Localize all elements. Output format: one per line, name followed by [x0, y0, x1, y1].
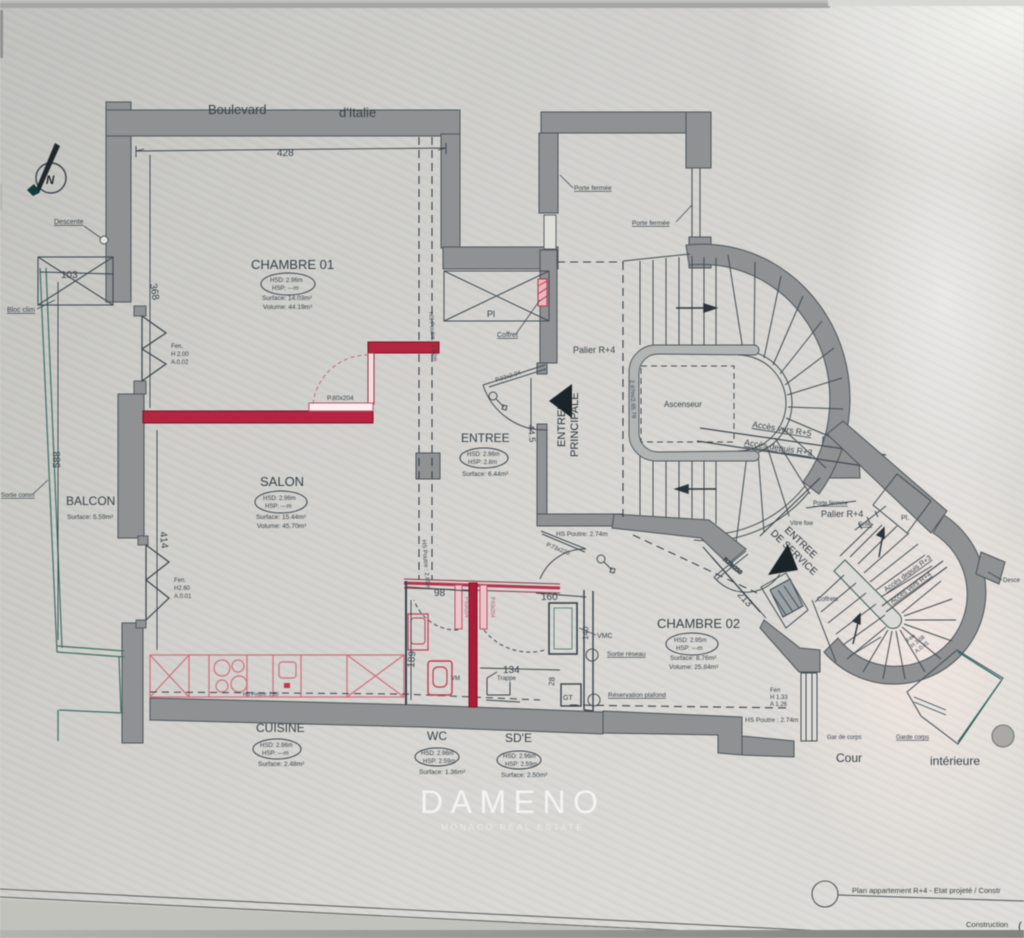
svg-text:BALCON: BALCON: [66, 494, 115, 508]
svg-text:134: 134: [503, 665, 520, 676]
svg-text:HSP: 2.59m: HSP: 2.59m: [505, 762, 537, 768]
svg-text:N: N: [46, 175, 55, 187]
svg-text:HS Poutre : 2.74m: HS Poutre : 2.74m: [745, 717, 798, 724]
svg-text:189: 189: [406, 650, 418, 668]
svg-text:Cour: Cour: [836, 751, 862, 765]
svg-text:Construction: Construction: [966, 920, 1008, 929]
svg-text:HSD: 2.96m: HSD: 2.96m: [270, 278, 303, 284]
svg-text:CHAMBRE 01: CHAMBRE 01: [251, 257, 334, 272]
svg-text:VMC: VMC: [597, 633, 613, 640]
svg-text:588: 588: [52, 451, 63, 468]
svg-text:VM: VM: [451, 676, 460, 682]
svg-text:Porte fermée: Porte fermée: [632, 220, 670, 227]
svg-text:Fen.: Fen.: [171, 344, 183, 350]
svg-text:HSD: 2.95m: HSD: 2.95m: [674, 638, 707, 644]
svg-text:H 1.33: H 1.33: [770, 695, 788, 701]
svg-text:HSD: 2.96m: HSD: 2.96m: [421, 751, 454, 757]
svg-text:Plan appartement R+4 - Etat pr: Plan appartement R+4 - Etat projeté / Co…: [852, 886, 1001, 895]
svg-text:GT: GT: [563, 695, 573, 702]
svg-text:HS Poutre: 2.74m: HS Poutre: 2.74m: [556, 531, 608, 538]
svg-text:Porte fermée: Porte fermée: [813, 501, 848, 507]
svg-text:Surface: 14.03m²: Surface: 14.03m²: [262, 295, 313, 302]
svg-text:Gar de corps: Gar de corps: [827, 735, 862, 741]
svg-text:Pl: Pl: [487, 309, 495, 319]
svg-text:Porte fermée: Porte fermée: [574, 185, 612, 192]
svg-text:Descente: Descente: [54, 219, 84, 226]
svg-text:H2.60: H2.60: [174, 586, 191, 592]
svg-text:ENTREE: ENTREE: [461, 431, 510, 445]
svg-text:P.80x204: P.80x204: [327, 395, 354, 402]
svg-text:Trappe: Trappe: [497, 676, 516, 682]
svg-text:Surface: 5.59m²: Surface: 5.59m²: [67, 514, 114, 521]
svg-text:Surface: 1.36m²: Surface: 1.36m²: [419, 769, 466, 776]
svg-text:CUISINE: CUISINE: [256, 721, 305, 735]
svg-text:Volume: 44.19m³: Volume: 44.19m³: [263, 304, 313, 311]
svg-text:98: 98: [434, 588, 446, 599]
svg-text:Surface: 2.48m²: Surface: 2.48m²: [258, 761, 305, 768]
svg-text:Palier R+4: Palier R+4: [573, 345, 615, 355]
svg-text:44.5: 44.5: [526, 424, 537, 442]
svg-text:d'Italie: d'Italie: [339, 105, 376, 120]
svg-text:CHAMBRE 02: CHAMBRE 02: [657, 616, 740, 631]
svg-text:HSP: 2.8m: HSP: 2.8m: [468, 460, 497, 466]
svg-text:A.0.02: A.0.02: [171, 360, 189, 366]
svg-text:Surface: 6.44m²: Surface: 6.44m²: [462, 471, 509, 478]
svg-text:WC: WC: [427, 729, 447, 743]
svg-text:HSP: ---m: HSP: ---m: [272, 286, 299, 292]
svg-text:Garde corps: Garde corps: [896, 735, 929, 741]
svg-text:Ascenseur: Ascenseur: [664, 400, 702, 409]
svg-text:P.63x204: P.63x204: [463, 597, 469, 618]
svg-text:HSD: 2.96m: HSD: 2.96m: [263, 496, 296, 502]
svg-text:Palier R+4: Palier R+4: [821, 509, 863, 519]
svg-text:Vitre fixe: Vitre fixe: [790, 521, 814, 527]
svg-text:Coffret: Coffret: [497, 332, 518, 339]
svg-text:Pl.: Pl.: [901, 515, 909, 522]
svg-text:Surface: 15.44m²: Surface: 15.44m²: [256, 514, 307, 521]
svg-text:HSD: 2.96m: HSD: 2.96m: [260, 743, 293, 749]
svg-text:DAMENO: DAMENO: [420, 784, 605, 820]
svg-text:H 2.00: H 2.00: [171, 352, 189, 358]
svg-text:HSP: ---m: HSP: ---m: [262, 751, 289, 757]
svg-text:Grille: Grille: [858, 522, 873, 528]
svg-text:Sortie comm: Sortie comm: [1, 493, 35, 499]
svg-text:intérieure: intérieure: [930, 754, 980, 768]
svg-text:P.63x204: P.63x204: [489, 597, 495, 618]
svg-text:MONACO REAL ESTATE: MONACO REAL ESTATE: [441, 822, 584, 832]
svg-text:28: 28: [547, 676, 557, 686]
svg-text:Boulevard: Boulevard: [208, 102, 267, 117]
svg-text:Coffrets: Coffrets: [817, 597, 838, 603]
svg-text:HSP: 2.59m: HSP: 2.59m: [423, 759, 455, 765]
svg-text:A 1.26: A 1.26: [770, 702, 788, 708]
svg-text:Volume: 45.70m³: Volume: 45.70m³: [257, 523, 307, 530]
svg-text:103: 103: [61, 270, 78, 281]
svg-text:A.0.01: A.0.01: [174, 594, 192, 600]
svg-text:Volume: 25.84m³: Volume: 25.84m³: [669, 664, 719, 671]
svg-text:Fen: Fen: [770, 688, 780, 694]
svg-text:414: 414: [157, 531, 169, 549]
svg-text:HSD: 2.96m: HSD: 2.96m: [467, 452, 500, 458]
svg-text:SD'E: SD'E: [505, 731, 532, 745]
svg-text:HSD: 2.96m: HSD: 2.96m: [503, 754, 536, 760]
svg-text:Sortie réseau: Sortie réseau: [607, 651, 646, 658]
svg-text:Desce: Desce: [1003, 578, 1021, 584]
svg-text:HS Poutre: 2.60: HS Poutre: 2.60: [243, 692, 279, 698]
svg-text:Surface: 8.76m²: Surface: 8.76m²: [670, 655, 717, 662]
svg-text:Réservation plafond: Réservation plafond: [608, 692, 666, 699]
svg-text:Bloc clim: Bloc clim: [7, 307, 35, 314]
svg-text:HSP: ---m: HSP: ---m: [265, 504, 292, 510]
svg-text:HSP: ---m: HSP: ---m: [676, 646, 703, 652]
svg-text:160: 160: [541, 592, 558, 603]
svg-text:140: 140: [581, 626, 590, 640]
svg-text:SALON: SALON: [260, 474, 304, 489]
svg-text:428: 428: [277, 148, 294, 159]
svg-text:Surface: 2.50m²: Surface: 2.50m²: [501, 772, 548, 779]
svg-text:Fen.: Fen.: [174, 578, 186, 584]
